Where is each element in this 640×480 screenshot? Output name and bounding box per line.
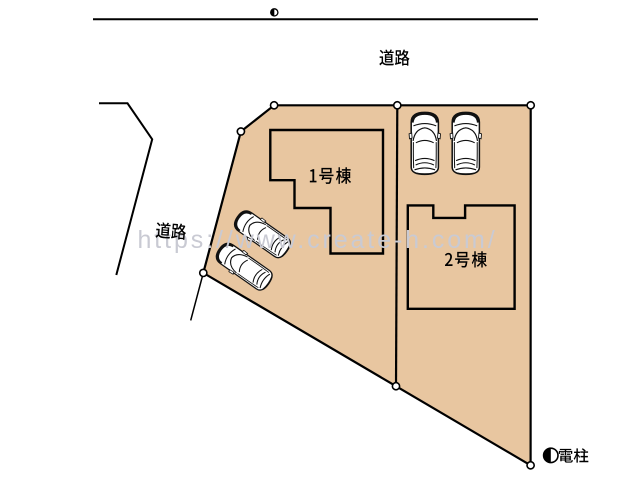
svg-text:https://www.create-h.com/: https://www.create-h.com/ [138,226,498,254]
